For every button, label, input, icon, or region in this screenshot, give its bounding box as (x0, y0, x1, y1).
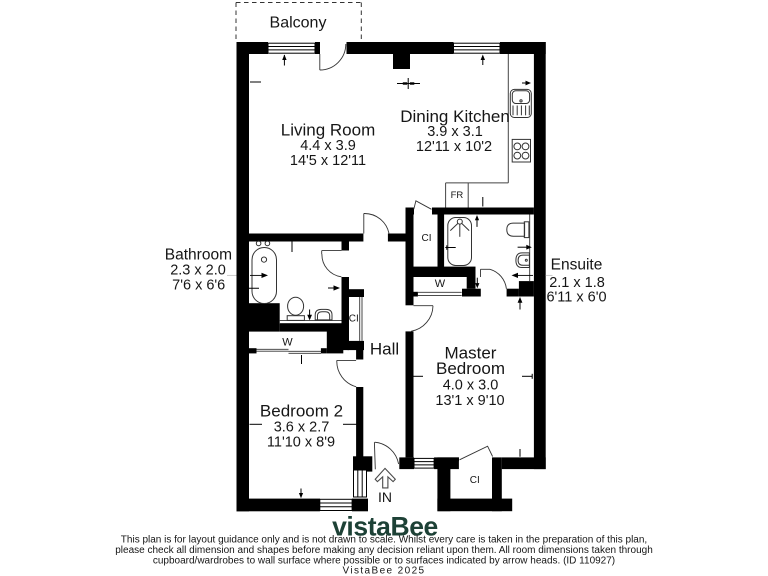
svg-text:Ensuite: Ensuite (551, 256, 603, 273)
svg-text:Dining Kitchen: Dining Kitchen (400, 107, 510, 126)
svg-text:Bedroom: Bedroom (436, 359, 505, 378)
svg-text:Bedroom 2: Bedroom 2 (260, 402, 343, 421)
svg-text:6'11 x 6'0: 6'11 x 6'0 (546, 290, 606, 306)
svg-text:please check all dimension and: please check all dimension and shapes be… (115, 545, 653, 556)
svg-text:14'5 x 12'11: 14'5 x 12'11 (290, 153, 366, 169)
svg-text:2.3 x 2.0: 2.3 x 2.0 (170, 262, 226, 278)
svg-text:12'11 x 10'2: 12'11 x 10'2 (416, 139, 492, 155)
svg-text:Hall: Hall (370, 339, 399, 358)
svg-text:CI: CI (422, 233, 432, 244)
svg-text:11'10 x 8'9: 11'10 x 8'9 (267, 435, 335, 451)
svg-text:4.0 x 3.0: 4.0 x 3.0 (443, 377, 499, 393)
svg-text:CI: CI (470, 475, 480, 486)
svg-text:7'6 x 6'6: 7'6 x 6'6 (172, 278, 225, 294)
svg-text:CI: CI (349, 314, 359, 325)
svg-text:3.6 x 2.7: 3.6 x 2.7 (274, 420, 330, 436)
svg-text:Balcony: Balcony (270, 15, 327, 32)
svg-text:Bathroom: Bathroom (165, 246, 232, 263)
svg-text:VistaBee 2025: VistaBee 2025 (342, 566, 425, 576)
svg-text:This plan is for layout guidan: This plan is for layout guidance only an… (121, 534, 647, 545)
svg-text:4.4 x 3.9: 4.4 x 3.9 (300, 138, 356, 154)
svg-text:IN: IN (378, 489, 392, 505)
svg-text:W: W (435, 278, 446, 290)
svg-text:Living Room: Living Room (281, 121, 376, 140)
svg-text:W: W (282, 337, 293, 349)
svg-text:3.9 x 3.1: 3.9 x 3.1 (427, 124, 483, 140)
svg-text:FR: FR (451, 190, 464, 201)
svg-text:13'1 x 9'10: 13'1 x 9'10 (435, 393, 504, 409)
